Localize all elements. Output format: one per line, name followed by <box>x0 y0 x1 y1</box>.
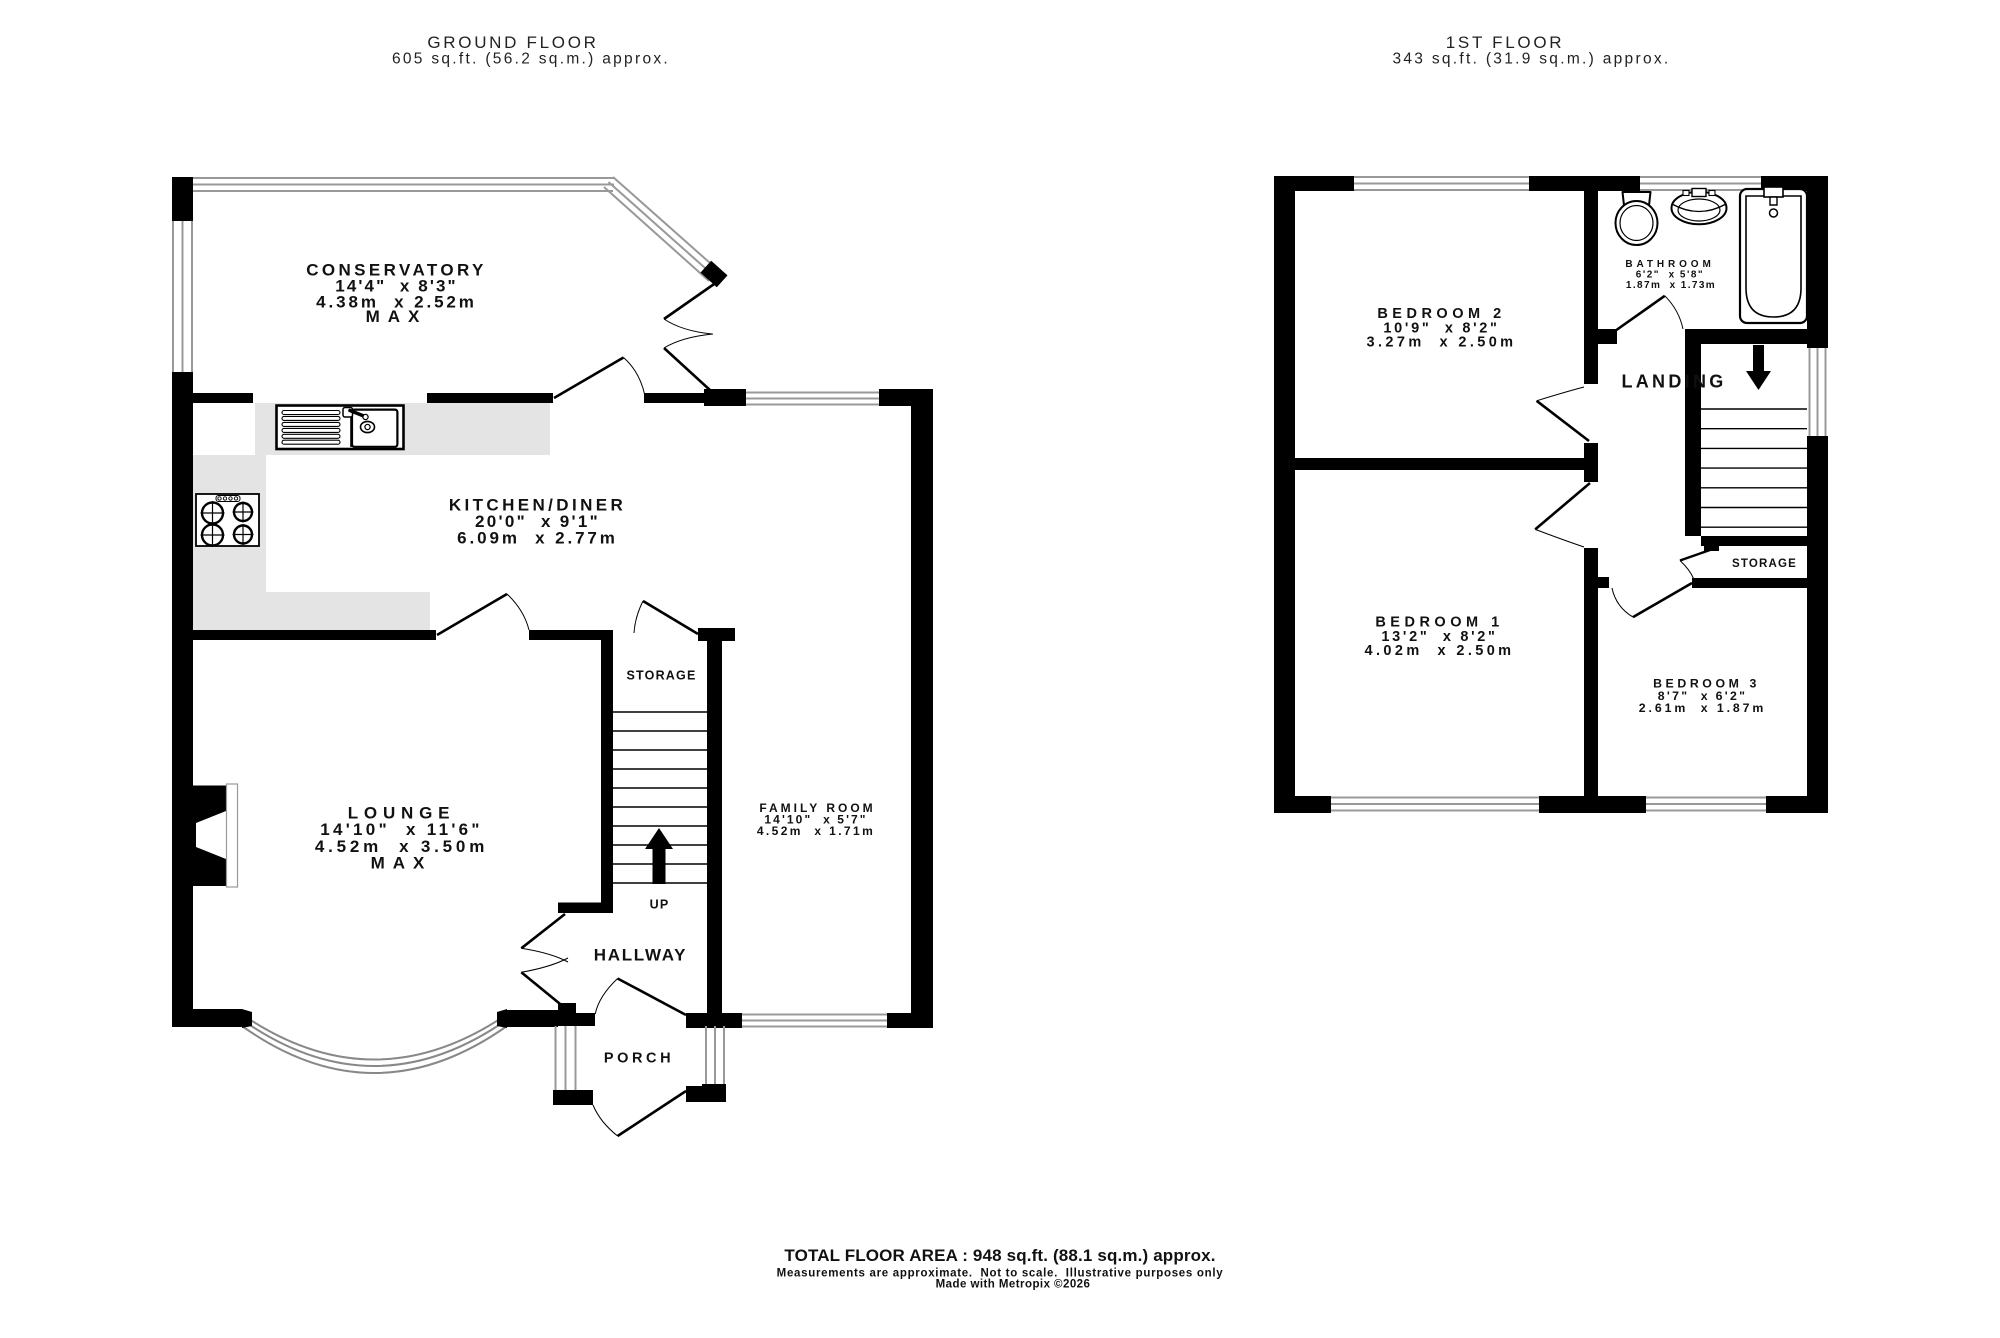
svg-text:PORCH: PORCH <box>604 1051 674 1067</box>
svg-text:6'2" x 5'8": 6'2" x 5'8" <box>1636 270 1704 281</box>
svg-text:Made with Metropix ©2026: Made with Metropix ©2026 <box>936 1279 1091 1291</box>
svg-text:GROUND FLOOR: GROUND FLOOR <box>427 33 598 52</box>
svg-text:TOTAL FLOOR AREA : 948 sq.ft.: TOTAL FLOOR AREA : 948 sq.ft. (88.1 sq.m… <box>784 1246 1215 1265</box>
svg-text:4.52m x 1.71m: 4.52m x 1.71m <box>757 824 875 838</box>
svg-text:3.27m x 2.50m: 3.27m x 2.50m <box>1367 335 1517 351</box>
svg-text:605 sq.ft. (56.2 sq.m.) approx: 605 sq.ft. (56.2 sq.m.) approx. <box>392 51 670 68</box>
svg-text:4.02m x 2.50m: 4.02m x 2.50m <box>1365 643 1515 659</box>
svg-text:2.61m x 1.87m: 2.61m x 1.87m <box>1639 701 1766 715</box>
svg-text:1.87m x 1.73m: 1.87m x 1.73m <box>1626 280 1716 291</box>
svg-text:STORAGE: STORAGE <box>627 669 697 683</box>
svg-text:LANDING: LANDING <box>1621 372 1726 392</box>
svg-text:6.09m x 2.77m: 6.09m x 2.77m <box>457 529 618 548</box>
svg-text:343 sq.ft. (31.9 sq.m.) approx: 343 sq.ft. (31.9 sq.m.) approx. <box>1392 51 1670 68</box>
svg-text:UP: UP <box>650 898 670 912</box>
svg-text:MAX: MAX <box>366 307 428 326</box>
svg-text:HALLWAY: HALLWAY <box>594 946 687 965</box>
svg-text:BATHROOM: BATHROOM <box>1625 259 1714 270</box>
svg-text:STORAGE: STORAGE <box>1732 558 1797 570</box>
svg-text:1ST FLOOR: 1ST FLOOR <box>1446 33 1564 52</box>
svg-text:MAX: MAX <box>371 854 433 873</box>
